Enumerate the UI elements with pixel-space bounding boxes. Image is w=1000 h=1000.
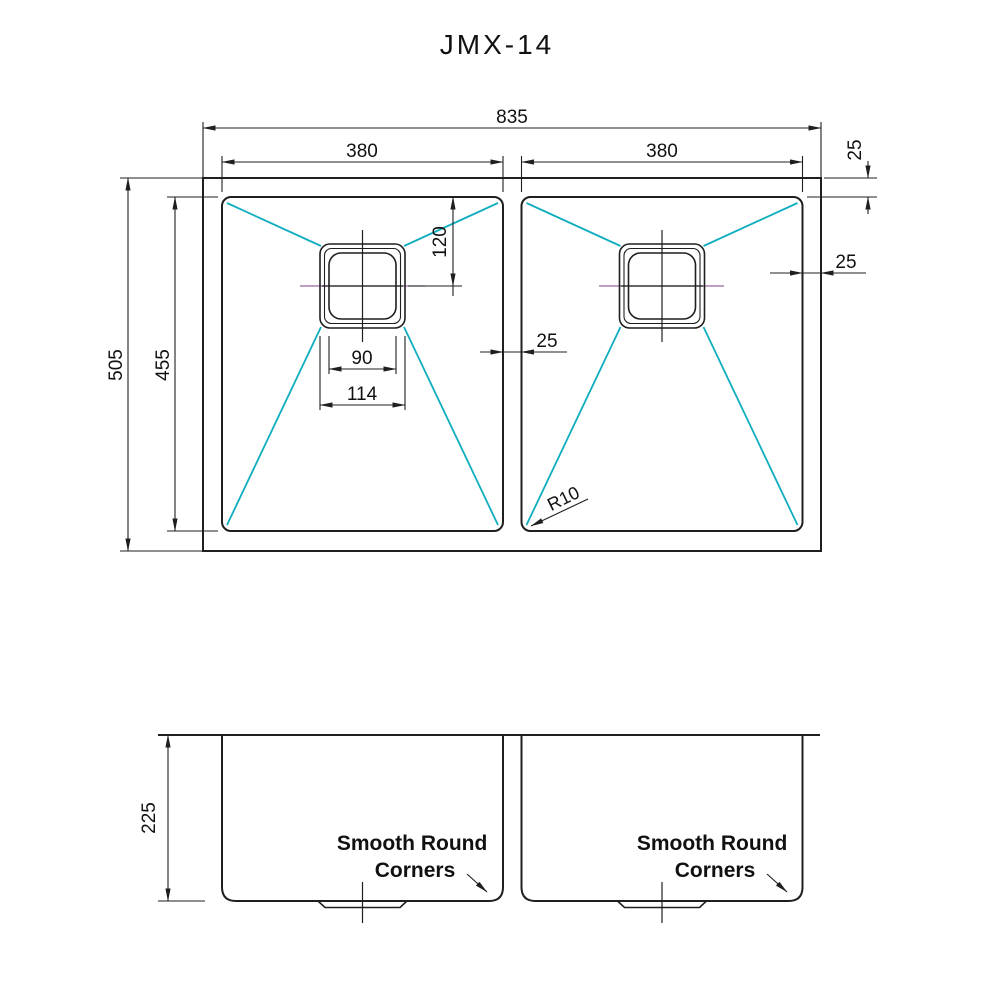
dim-bowl-depth: 455 (153, 197, 218, 531)
note-smooth-round-corners-right: Smooth Round Corners (637, 832, 793, 882)
dim-rim-top-label: 25 (845, 139, 866, 160)
dim-bowl-height-label: 225 (139, 802, 160, 834)
dim-drain-offset: 120 (408, 197, 462, 296)
dim-left-bowl-width-label: 380 (346, 141, 378, 162)
dim-drain-offset-label: 120 (430, 226, 451, 258)
dim-divider-width: 25 (480, 331, 567, 352)
dim-overall-width-label: 835 (496, 107, 528, 128)
technical-drawing-page: JMX-14 (0, 0, 1000, 1000)
sink-technical-drawing: JMX-14 (0, 0, 1000, 1000)
front-right-bowl (522, 735, 803, 901)
dim-left-bowl-width: 380 (222, 141, 503, 192)
front-left-bowl (222, 735, 503, 901)
left-drain (320, 230, 405, 342)
dim-rim-side: 25 (770, 252, 866, 273)
corner-radius-label: R10 (544, 482, 582, 514)
dim-overall-width: 835 (203, 107, 821, 183)
dim-rim-top: 25 (807, 139, 877, 214)
corner-radius-callout: R10 (531, 482, 588, 526)
note-leader-left (467, 874, 487, 892)
note-smooth-round-corners-left: Smooth Round Corners (337, 832, 493, 882)
right-drain (620, 230, 705, 342)
dim-right-bowl-width: 380 (522, 141, 803, 192)
note-leader-right (767, 874, 787, 892)
dim-drain-inner-label: 90 (351, 348, 372, 369)
front-view: 225 Smooth Round Corners Smooth Round Co… (139, 735, 820, 923)
dim-bowl-depth-label: 455 (153, 349, 174, 381)
dim-bowl-height: 225 (139, 735, 205, 901)
dim-divider-width-label: 25 (536, 331, 557, 352)
dim-overall-depth-label: 505 (106, 349, 127, 381)
dim-drain-outer-label: 114 (347, 384, 378, 405)
dim-rim-side-label: 25 (835, 252, 856, 273)
drawing-title: JMX-14 (440, 29, 554, 60)
top-view: 835 380 380 505 455 (106, 107, 877, 551)
dim-right-bowl-width-label: 380 (646, 141, 678, 162)
